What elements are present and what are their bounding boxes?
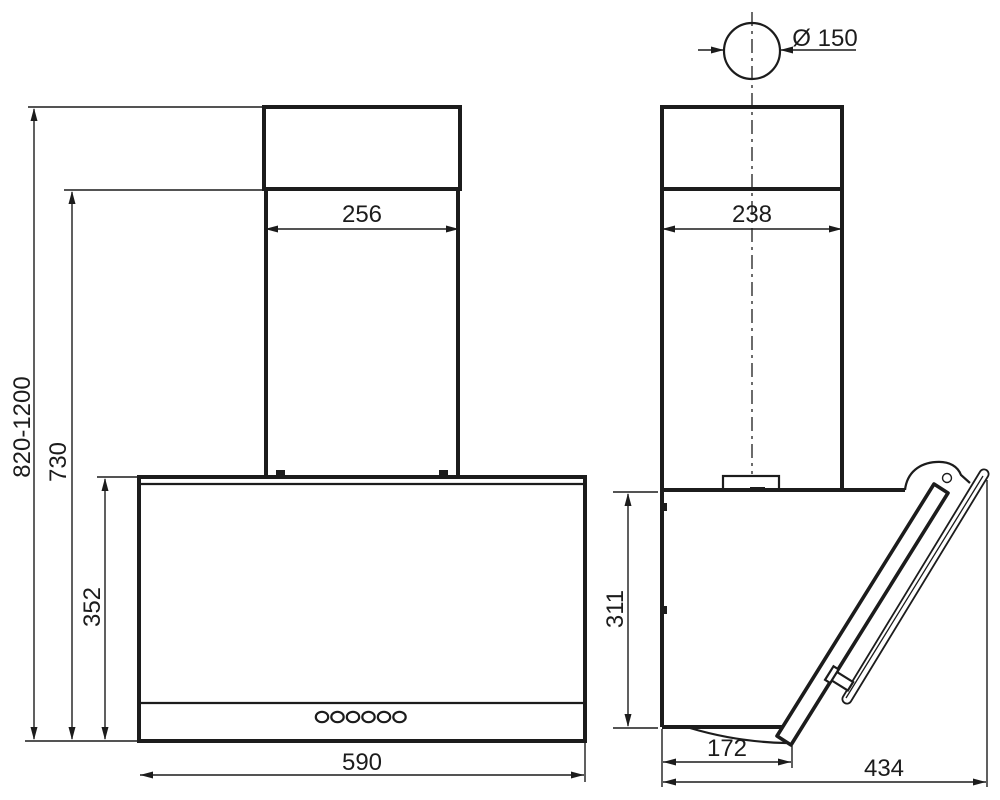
dim-total-height-label: 820-1200: [9, 376, 36, 477]
hinge-pivot: [943, 474, 952, 483]
side-mount-tab-lower: [662, 606, 667, 614]
front-body: [139, 477, 585, 741]
dim-bottom-depth-label: 172: [707, 735, 747, 762]
front-chimney-upper-section: [264, 107, 460, 189]
dim-total-depth-label: 434: [864, 755, 904, 782]
side-mount-tab-upper: [662, 503, 667, 511]
dim-chimney-depth-label: 238: [732, 201, 772, 228]
dim-side-body-height-label: 311: [602, 590, 629, 628]
dim-front-body-height-label: 352: [79, 587, 106, 627]
dim-chimney-joint-height-label: 730: [45, 442, 72, 482]
dim-body-width-label: 590: [342, 749, 382, 776]
dim-chimney-width-label: 256: [342, 201, 382, 228]
side-view: [662, 12, 984, 745]
dim-duct-diameter-label: Ø 150: [792, 25, 857, 52]
door-frame-band: [777, 484, 948, 745]
technical-drawing: 820-1200 730 352 256 590: [0, 0, 1000, 800]
door-glass-panel: [846, 474, 984, 699]
dimension-drawing-svg: 820-1200 730 352 256 590: [0, 0, 1000, 800]
